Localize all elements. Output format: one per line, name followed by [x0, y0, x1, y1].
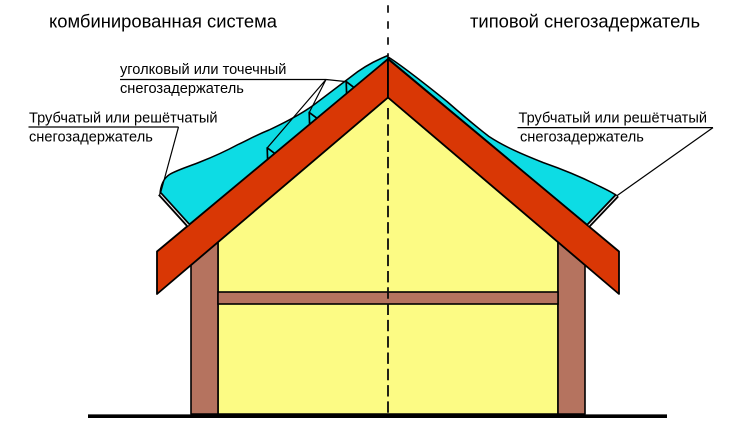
svg-text:снегозадержатель: снегозадержатель: [520, 129, 644, 145]
svg-text:снегозадержатель: снегозадержатель: [29, 129, 153, 145]
svg-text:Трубчатый или решётчатый: Трубчатый или решётчатый: [519, 110, 708, 126]
svg-text:Трубчатый или решётчатый: Трубчатый или решётчатый: [29, 110, 218, 126]
svg-text:типовой снегозадержатель: типовой снегозадержатель: [470, 11, 700, 32]
svg-text:снегозадержатель: снегозадержатель: [120, 81, 244, 97]
svg-text:уголковый или точечный: уголковый или точечный: [120, 62, 286, 78]
svg-text:комбинированная система: комбинированная система: [49, 11, 278, 32]
